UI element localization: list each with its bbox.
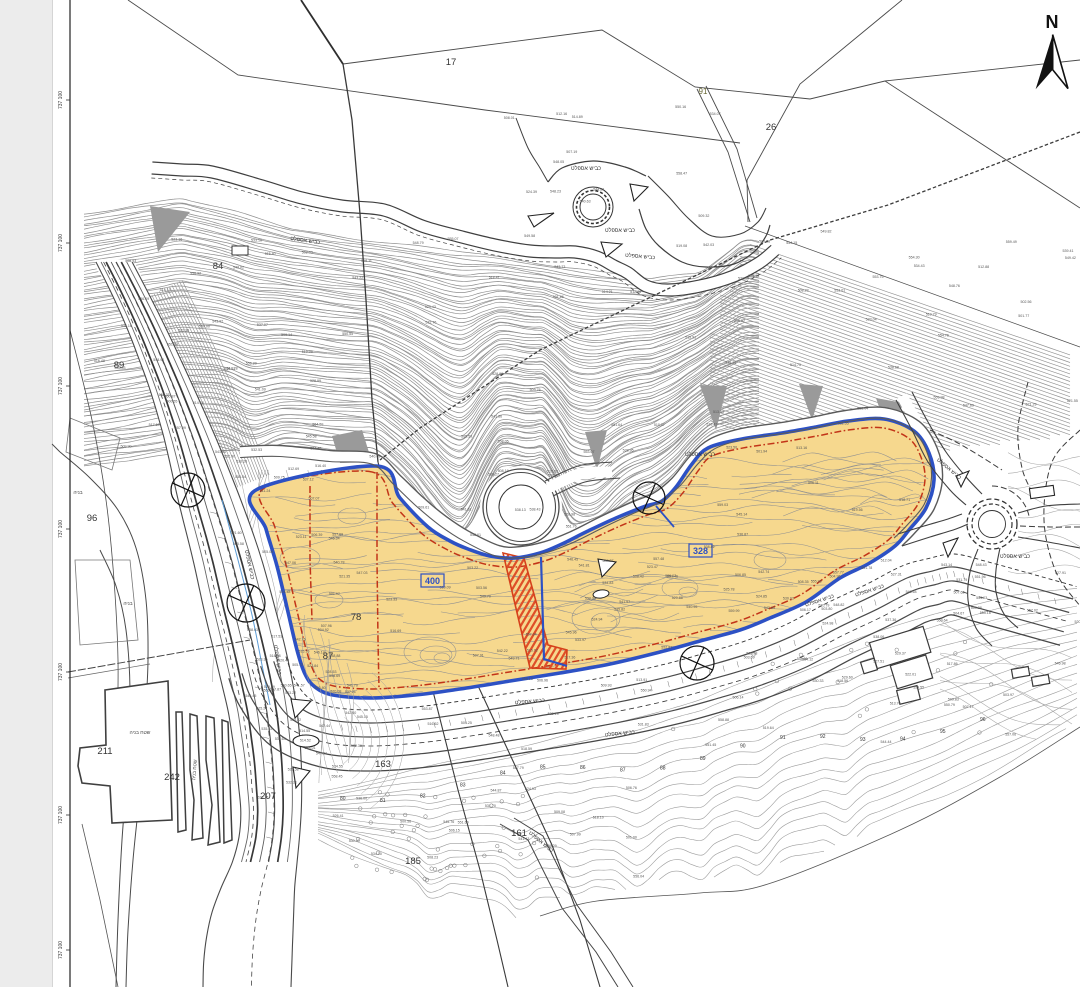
svg-text:78: 78 <box>351 612 362 623</box>
svg-text:549.58: 549.58 <box>524 234 535 238</box>
svg-text:538.06: 538.06 <box>873 635 884 639</box>
svg-text:514.52: 514.52 <box>300 738 311 742</box>
svg-text:544.44: 544.44 <box>881 740 892 744</box>
svg-text:540.65: 540.65 <box>281 683 292 687</box>
svg-text:533.10: 533.10 <box>251 239 262 243</box>
svg-text:84: 84 <box>500 771 506 777</box>
svg-text:541.61: 541.61 <box>215 450 226 454</box>
svg-text:558.88: 558.88 <box>718 718 729 722</box>
svg-text:554.03: 554.03 <box>976 596 987 600</box>
svg-text:508.27: 508.27 <box>603 559 614 563</box>
svg-text:522.38: 522.38 <box>178 328 189 332</box>
svg-text:548.91: 548.91 <box>153 358 164 362</box>
svg-text:551.76: 551.76 <box>566 525 577 529</box>
svg-text:513.16: 513.16 <box>796 446 807 450</box>
svg-text:520.88: 520.88 <box>672 596 683 600</box>
svg-text:523.35: 523.35 <box>257 657 268 661</box>
svg-text:185: 185 <box>405 856 421 867</box>
svg-text:508.19: 508.19 <box>498 469 509 473</box>
svg-text:557.06: 557.06 <box>1005 732 1016 736</box>
svg-text:513.13: 513.13 <box>160 288 171 292</box>
svg-text:540.63: 540.63 <box>580 200 591 204</box>
svg-text:518.41: 518.41 <box>489 276 500 280</box>
svg-text:540.78: 540.78 <box>334 561 345 565</box>
svg-text:557.48: 557.48 <box>653 557 664 561</box>
svg-text:522.84: 522.84 <box>307 664 318 668</box>
svg-text:242: 242 <box>164 772 180 783</box>
svg-text:543.92: 543.92 <box>212 320 223 324</box>
svg-text:501.86: 501.86 <box>553 295 564 299</box>
svg-text:542.03: 542.03 <box>703 243 714 247</box>
svg-text:533.79: 533.79 <box>725 361 736 365</box>
svg-text:551.96: 551.96 <box>975 575 986 579</box>
svg-text:548.05: 548.05 <box>553 160 564 164</box>
svg-text:163: 163 <box>375 759 391 770</box>
svg-text:548.48: 548.48 <box>489 734 500 738</box>
svg-text:540.95: 540.95 <box>686 605 697 609</box>
svg-text:528.99: 528.99 <box>310 379 321 383</box>
svg-text:514.55: 514.55 <box>299 729 310 733</box>
svg-text:528.96: 528.96 <box>492 372 503 376</box>
svg-text:519.64: 519.64 <box>763 726 774 730</box>
svg-text:88: 88 <box>660 766 666 772</box>
svg-text:536.87: 536.87 <box>737 532 748 536</box>
svg-text:529.43: 529.43 <box>425 305 436 309</box>
svg-text:506.17: 506.17 <box>800 608 811 612</box>
svg-text:538.68: 538.68 <box>888 366 899 370</box>
svg-text:545.34: 545.34 <box>329 537 340 541</box>
svg-text:524.85: 524.85 <box>756 595 767 599</box>
svg-text:540.09: 540.09 <box>369 454 380 458</box>
svg-text:548.61: 548.61 <box>470 533 481 537</box>
svg-text:86: 86 <box>580 765 586 771</box>
svg-text:556.92: 556.92 <box>190 272 201 276</box>
svg-text:534.43: 534.43 <box>914 264 925 268</box>
svg-text:535.63: 535.63 <box>275 737 286 741</box>
svg-text:548.76: 548.76 <box>949 284 960 288</box>
svg-text:533.16: 533.16 <box>121 324 132 328</box>
svg-text:508.01: 508.01 <box>504 116 515 120</box>
svg-text:524.39: 524.39 <box>526 190 537 194</box>
svg-text:512.46: 512.46 <box>630 290 641 294</box>
svg-text:84: 84 <box>213 261 224 272</box>
svg-text:532.19: 532.19 <box>548 712 559 716</box>
svg-text:555.54: 555.54 <box>235 475 246 479</box>
svg-text:543.02: 543.02 <box>233 266 244 270</box>
svg-text:551.64: 551.64 <box>611 423 622 427</box>
svg-text:503.22: 503.22 <box>467 566 478 570</box>
svg-text:553.01: 553.01 <box>834 289 845 293</box>
svg-text:507.96: 507.96 <box>321 624 332 628</box>
svg-text:551.60: 551.60 <box>458 821 469 825</box>
svg-text:509.08: 509.08 <box>554 810 565 814</box>
svg-text:517.36: 517.36 <box>564 656 575 660</box>
svg-text:550.16: 550.16 <box>675 105 686 109</box>
svg-text:538.43: 538.43 <box>530 508 541 512</box>
svg-text:517.86: 517.86 <box>947 662 958 666</box>
svg-text:546.45: 546.45 <box>567 557 578 561</box>
svg-text:500.55: 500.55 <box>166 400 177 404</box>
svg-text:531.55: 531.55 <box>838 422 849 426</box>
svg-text:548.82: 548.82 <box>833 603 844 607</box>
svg-text:509.14: 509.14 <box>281 333 292 337</box>
svg-text:504.96: 504.96 <box>830 575 841 579</box>
svg-text:526.07: 526.07 <box>665 574 676 578</box>
svg-text:94: 94 <box>900 737 906 743</box>
svg-text:545.15: 545.15 <box>357 715 368 719</box>
svg-text:89: 89 <box>700 756 706 762</box>
svg-text:83: 83 <box>460 783 466 789</box>
svg-text:26: 26 <box>766 122 777 133</box>
svg-text:541.81: 541.81 <box>579 563 590 567</box>
svg-text:557.79: 557.79 <box>513 766 524 770</box>
svg-text:520.44: 520.44 <box>278 658 289 662</box>
svg-text:504.45: 504.45 <box>310 446 321 450</box>
svg-text:505.08: 505.08 <box>262 550 273 554</box>
svg-text:96: 96 <box>980 717 986 723</box>
svg-text:80: 80 <box>340 796 346 802</box>
svg-text:509.61: 509.61 <box>418 505 429 509</box>
svg-text:530.33: 530.33 <box>813 679 824 683</box>
svg-text:506.85: 506.85 <box>735 573 746 577</box>
svg-text:551.84: 551.84 <box>167 343 178 347</box>
svg-text:555.07: 555.07 <box>448 237 459 241</box>
svg-text:510.79: 510.79 <box>926 312 937 316</box>
svg-text:557.99: 557.99 <box>175 426 186 430</box>
svg-text:501.97: 501.97 <box>329 592 340 596</box>
svg-text:525.27: 525.27 <box>256 707 267 711</box>
svg-text:558.69: 558.69 <box>329 674 340 678</box>
svg-text:541.43: 541.43 <box>518 837 529 841</box>
svg-text:91: 91 <box>780 735 786 741</box>
svg-text:535.82: 535.82 <box>614 608 625 612</box>
svg-text:548.43: 548.43 <box>976 563 987 567</box>
svg-text:547.03: 547.03 <box>357 571 368 575</box>
svg-text:בניה: בניה <box>73 490 82 496</box>
svg-text:556.52: 556.52 <box>734 319 745 323</box>
svg-text:509.76: 509.76 <box>530 388 541 392</box>
svg-text:504.67: 504.67 <box>953 611 964 615</box>
svg-text:554.30: 554.30 <box>909 255 920 259</box>
svg-text:518.28: 518.28 <box>270 654 281 658</box>
svg-text:512.69: 512.69 <box>288 467 299 471</box>
svg-text:538.03: 538.03 <box>247 628 258 632</box>
svg-text:542.65: 542.65 <box>764 606 775 610</box>
svg-text:544.88: 544.88 <box>593 187 604 191</box>
svg-text:520.79: 520.79 <box>818 604 829 608</box>
svg-text:521.60: 521.60 <box>231 531 242 535</box>
svg-text:502.03: 502.03 <box>302 251 313 255</box>
svg-text:507.19: 507.19 <box>566 150 577 154</box>
svg-text:520.91: 520.91 <box>1075 620 1080 624</box>
svg-text:548.64: 548.64 <box>906 590 917 594</box>
svg-text:525.78: 525.78 <box>724 588 735 592</box>
svg-text:518.59: 518.59 <box>521 747 532 751</box>
svg-text:509.32: 509.32 <box>698 214 709 218</box>
svg-text:737 100: 737 100 <box>58 234 64 252</box>
svg-text:549.42: 549.42 <box>1065 256 1076 260</box>
svg-text:91: 91 <box>699 87 708 96</box>
svg-text:545.14: 545.14 <box>736 512 747 516</box>
svg-text:554.12: 554.12 <box>802 657 813 661</box>
svg-text:534.07: 534.07 <box>710 112 721 116</box>
svg-text:554.15: 554.15 <box>786 241 797 245</box>
svg-text:557.87: 557.87 <box>270 687 281 691</box>
svg-text:547.06: 547.06 <box>285 561 296 565</box>
svg-text:542.74: 542.74 <box>758 570 769 574</box>
svg-text:550.79: 550.79 <box>944 703 955 707</box>
svg-text:535.53: 535.53 <box>261 727 272 731</box>
svg-text:737 100: 737 100 <box>58 377 64 395</box>
svg-text:543.14: 543.14 <box>941 563 952 567</box>
svg-text:507.91: 507.91 <box>473 653 484 657</box>
svg-text:518.11: 518.11 <box>361 259 372 263</box>
svg-text:527.91: 527.91 <box>1055 571 1066 575</box>
svg-text:541.61: 541.61 <box>461 507 472 511</box>
svg-text:513.39: 513.39 <box>713 410 724 414</box>
svg-text:737 100: 737 100 <box>58 520 64 538</box>
svg-text:519.42: 519.42 <box>706 423 717 427</box>
svg-text:504.25: 504.25 <box>461 721 472 725</box>
svg-text:531.79: 531.79 <box>956 578 967 582</box>
svg-text:87: 87 <box>620 768 626 774</box>
svg-text:527.51: 527.51 <box>873 659 884 663</box>
svg-text:737 100: 737 100 <box>58 806 64 824</box>
svg-text:559.29: 559.29 <box>546 844 557 848</box>
svg-text:503.56: 503.56 <box>476 586 487 590</box>
svg-text:509.75: 509.75 <box>274 476 285 480</box>
svg-text:N: N <box>1046 12 1059 32</box>
svg-text:509.83: 509.83 <box>948 697 959 701</box>
svg-text:510.57: 510.57 <box>654 423 665 427</box>
svg-text:532.21: 532.21 <box>286 780 297 784</box>
svg-text:531.19: 531.19 <box>738 277 749 281</box>
svg-text:517.69: 517.69 <box>149 423 160 427</box>
svg-text:553.18: 553.18 <box>980 611 991 615</box>
svg-text:519.08: 519.08 <box>676 244 687 248</box>
svg-text:400: 400 <box>425 576 440 586</box>
svg-text:512.16: 512.16 <box>556 112 567 116</box>
svg-text:544.87: 544.87 <box>491 789 502 793</box>
svg-text:557.94: 557.94 <box>526 633 537 637</box>
svg-text:515.02: 515.02 <box>527 649 538 653</box>
svg-text:533.04: 533.04 <box>866 318 877 322</box>
svg-text:500.56: 500.56 <box>400 819 411 823</box>
svg-text:90: 90 <box>740 744 746 750</box>
svg-text:550.55: 550.55 <box>342 332 353 336</box>
svg-text:כביש אספלט: כביש אספלט <box>605 227 635 234</box>
svg-text:521.35: 521.35 <box>339 575 350 579</box>
svg-text:506.76: 506.76 <box>626 786 637 790</box>
svg-text:523.16: 523.16 <box>171 237 182 241</box>
svg-text:550.94: 550.94 <box>641 689 652 693</box>
svg-text:545.76: 545.76 <box>443 820 454 824</box>
svg-text:515.40: 515.40 <box>265 252 276 256</box>
svg-text:543.73: 543.73 <box>554 265 565 269</box>
svg-text:530.40: 530.40 <box>349 839 360 843</box>
svg-text:17: 17 <box>446 57 457 68</box>
svg-text:523.58: 523.58 <box>288 768 299 772</box>
svg-text:537.36: 537.36 <box>885 618 896 622</box>
svg-text:539.41: 539.41 <box>1063 249 1074 253</box>
svg-text:כביש אספלט: כביש אספלט <box>1000 553 1030 560</box>
svg-text:523.50: 523.50 <box>726 446 737 450</box>
svg-text:554.59: 554.59 <box>312 422 323 426</box>
svg-text:559.64: 559.64 <box>937 619 948 623</box>
svg-text:514.75: 514.75 <box>790 363 801 367</box>
svg-text:523.33: 523.33 <box>386 597 397 601</box>
svg-text:556.09: 556.09 <box>138 297 149 301</box>
svg-text:524.48: 524.48 <box>279 590 290 594</box>
svg-text:518.10: 518.10 <box>593 816 604 820</box>
svg-text:526.41: 526.41 <box>333 814 344 818</box>
svg-text:508.42: 508.42 <box>633 575 644 579</box>
svg-text:545.96: 545.96 <box>566 630 577 634</box>
svg-text:522.01: 522.01 <box>905 672 916 676</box>
svg-text:557.77: 557.77 <box>833 570 844 574</box>
svg-text:513.70: 513.70 <box>890 702 901 706</box>
svg-text:559.99: 559.99 <box>729 609 740 613</box>
svg-text:559.03: 559.03 <box>717 503 728 507</box>
svg-text:510.09: 510.09 <box>302 350 313 354</box>
svg-text:524.55: 524.55 <box>332 764 343 768</box>
svg-text:555.96: 555.96 <box>811 579 822 583</box>
svg-text:503.80: 503.80 <box>821 607 832 611</box>
svg-text:521.29: 521.29 <box>1026 402 1037 406</box>
svg-text:556.20: 556.20 <box>246 361 257 365</box>
svg-text:551.45: 551.45 <box>705 743 716 747</box>
svg-text:501.00: 501.00 <box>626 836 637 840</box>
svg-text:506.11: 506.11 <box>808 481 819 485</box>
svg-text:555.03: 555.03 <box>115 366 126 370</box>
svg-text:558.47: 558.47 <box>676 172 687 176</box>
svg-text:536.85: 536.85 <box>548 473 559 477</box>
svg-text:548.79: 548.79 <box>413 241 424 245</box>
svg-text:553.87: 553.87 <box>422 707 433 711</box>
svg-text:559.13: 559.13 <box>522 677 533 681</box>
svg-text:557.02: 557.02 <box>1027 609 1038 613</box>
svg-text:533.97: 533.97 <box>575 638 586 642</box>
svg-text:514.28: 514.28 <box>193 401 204 405</box>
svg-text:553.12: 553.12 <box>748 274 759 278</box>
svg-text:559.98: 559.98 <box>934 396 945 400</box>
svg-text:507.17: 507.17 <box>963 705 974 709</box>
svg-text:554.76: 554.76 <box>938 334 949 338</box>
svg-text:538.88: 538.88 <box>329 654 340 658</box>
svg-text:533.01: 533.01 <box>305 746 316 750</box>
svg-text:531.83: 531.83 <box>638 723 649 727</box>
svg-text:523.47: 523.47 <box>647 565 658 569</box>
svg-text:558.45: 558.45 <box>332 775 343 779</box>
svg-text:541.57: 541.57 <box>294 684 305 688</box>
svg-text:543.45: 543.45 <box>245 694 256 698</box>
svg-text:547.44: 547.44 <box>319 724 330 728</box>
svg-text:549.70: 549.70 <box>480 595 491 599</box>
svg-text:548.23: 548.23 <box>550 189 561 193</box>
svg-text:515.10: 515.10 <box>298 649 309 653</box>
svg-text:547.69: 547.69 <box>963 404 974 408</box>
svg-text:514.21: 514.21 <box>602 290 613 294</box>
svg-text:532.53: 532.53 <box>251 448 262 452</box>
svg-text:506.39: 506.39 <box>311 533 322 537</box>
svg-text:508.35: 508.35 <box>798 580 809 584</box>
svg-text:537.07: 537.07 <box>257 323 268 327</box>
svg-text:516.40: 516.40 <box>315 464 326 468</box>
svg-text:511.24: 511.24 <box>260 489 271 493</box>
svg-text:505.59: 505.59 <box>461 435 472 439</box>
svg-text:543.22: 543.22 <box>352 276 363 280</box>
svg-text:553.07: 553.07 <box>584 450 595 454</box>
svg-text:211: 211 <box>97 746 112 757</box>
svg-text:538.35: 538.35 <box>159 393 170 397</box>
svg-text:528.75: 528.75 <box>257 796 268 800</box>
svg-text:534.83: 534.83 <box>602 581 613 585</box>
svg-text:559.41: 559.41 <box>224 367 235 371</box>
svg-text:512.04: 512.04 <box>881 559 892 563</box>
svg-text:518.71: 518.71 <box>899 498 910 502</box>
svg-text:559.49: 559.49 <box>1006 240 1017 244</box>
svg-text:527.31: 527.31 <box>891 572 902 576</box>
svg-text:502.56: 502.56 <box>1021 300 1032 304</box>
svg-text:506.15: 506.15 <box>449 829 460 833</box>
svg-text:510.09: 510.09 <box>440 585 451 589</box>
svg-text:כביש אספלט: כביש אספלט <box>685 451 715 458</box>
svg-text:546.14: 546.14 <box>314 651 325 655</box>
svg-text:530.03: 530.03 <box>783 597 794 601</box>
svg-text:508.23: 508.23 <box>427 856 438 860</box>
svg-text:514.89: 514.89 <box>572 115 583 119</box>
svg-text:520.08: 520.08 <box>330 690 341 694</box>
svg-text:501.94: 501.94 <box>756 449 767 453</box>
svg-text:92: 92 <box>820 734 826 740</box>
svg-text:547.34: 547.34 <box>316 751 327 755</box>
svg-text:503.97: 503.97 <box>1003 693 1014 697</box>
svg-text:555.22: 555.22 <box>290 718 301 722</box>
svg-text:85: 85 <box>540 764 546 770</box>
svg-text:509.90: 509.90 <box>121 444 132 448</box>
svg-text:505.72: 505.72 <box>292 663 303 667</box>
svg-text:538.82: 538.82 <box>704 545 715 549</box>
svg-text:523.80: 523.80 <box>315 686 326 690</box>
svg-text:524.98: 524.98 <box>822 621 833 625</box>
svg-text:542.50: 542.50 <box>345 711 356 715</box>
svg-text:558.05: 558.05 <box>498 440 509 444</box>
svg-text:507.07: 507.07 <box>309 497 320 501</box>
svg-text:545.58: 545.58 <box>306 434 317 438</box>
svg-text:553.75: 553.75 <box>873 275 884 279</box>
svg-text:95: 95 <box>940 729 946 735</box>
svg-text:555.04: 555.04 <box>857 407 868 411</box>
svg-text:529.37: 529.37 <box>895 652 906 656</box>
svg-text:507.62: 507.62 <box>954 590 965 594</box>
svg-text:552.90: 552.90 <box>224 454 235 458</box>
svg-text:501.77: 501.77 <box>1018 314 1029 318</box>
svg-text:516.48: 516.48 <box>94 359 105 363</box>
svg-text:502.39: 502.39 <box>351 744 362 748</box>
svg-text:510.28: 510.28 <box>236 459 247 463</box>
svg-text:523.11: 523.11 <box>296 535 307 539</box>
svg-text:506.96: 506.96 <box>537 679 548 683</box>
svg-text:508.93: 508.93 <box>125 259 136 263</box>
svg-text:538.95: 538.95 <box>623 448 634 452</box>
svg-text:549.71: 549.71 <box>509 657 520 661</box>
svg-text:513.91: 513.91 <box>636 678 647 682</box>
svg-text:537.21: 537.21 <box>345 690 356 694</box>
svg-text:542.22: 542.22 <box>497 649 508 653</box>
svg-text:532.76: 532.76 <box>425 320 436 324</box>
svg-text:96: 96 <box>87 513 98 524</box>
svg-text:521.55: 521.55 <box>1067 399 1078 403</box>
